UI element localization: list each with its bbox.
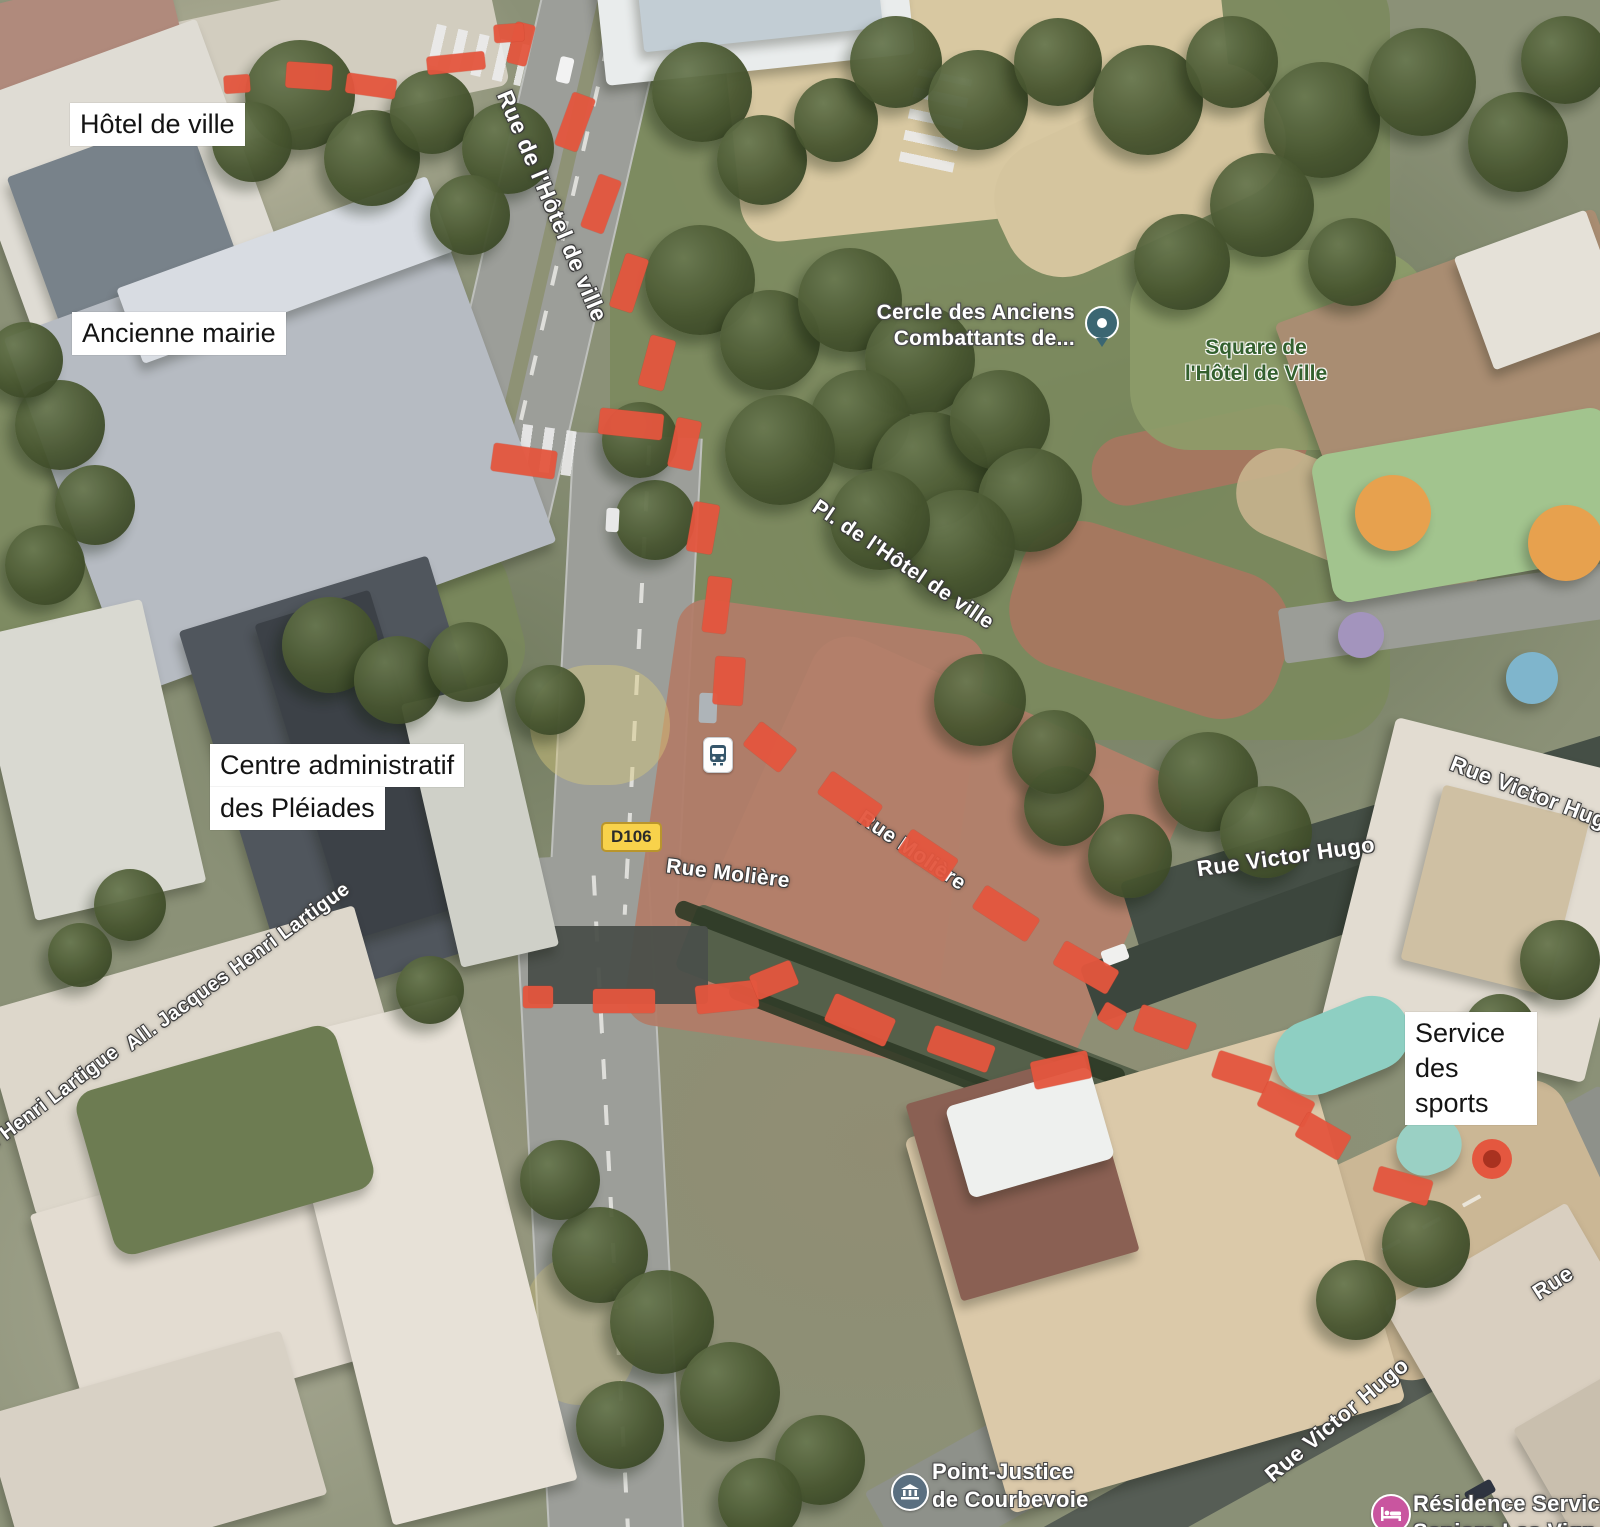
annotation-line: des sports — [1415, 1051, 1527, 1121]
route-end-marker — [1472, 1139, 1512, 1179]
annotation-line: Ancienne mairie — [72, 312, 286, 355]
tree-canopy — [1134, 214, 1230, 310]
tree-canopy — [717, 115, 807, 205]
vehicle — [605, 508, 619, 533]
annotation-line: Hôtel de ville — [70, 103, 245, 146]
map-play-circle-orange-2 — [1528, 505, 1600, 581]
route-dash — [285, 61, 333, 90]
tree-canopy — [1520, 920, 1600, 1000]
poi-label-line: l'Hôtel de Ville — [1185, 361, 1327, 387]
route-dash — [223, 74, 250, 94]
map-play-circle-blue — [1506, 652, 1558, 704]
tree-canopy — [1308, 218, 1396, 306]
tree-canopy — [576, 1381, 664, 1469]
poi-label-line: Cercle des Anciens — [877, 300, 1075, 326]
poi-label-square-de-l-hotel-de-ville[interactable]: Square del'Hôtel de Ville — [1185, 335, 1327, 388]
map-play-circle-orange-1 — [1355, 475, 1431, 551]
tree-canopy — [1186, 16, 1278, 108]
poi-label-line: de Courbevoie — [932, 1486, 1089, 1514]
map-pin-icon[interactable] — [1085, 306, 1119, 340]
tree-canopy — [1368, 28, 1476, 136]
annotation-ancienne-mairie: Ancienne mairie — [72, 312, 286, 355]
tree-canopy — [48, 923, 112, 987]
tree-canopy — [430, 175, 510, 255]
poi-label-line: Point-Justice — [932, 1458, 1089, 1486]
lodging-bed-icon[interactable] — [1371, 1494, 1411, 1527]
tree-canopy — [680, 1342, 780, 1442]
annotation-hotel-de-ville: Hôtel de ville — [70, 103, 245, 146]
annotation-centre-administratif-des-pleiades: Centre administratifdes Pléiades — [210, 744, 464, 830]
poi-label-line: Combattants de... — [877, 326, 1075, 352]
map-play-circle-purple — [1338, 612, 1384, 658]
tree-canopy — [1014, 18, 1102, 106]
route-dash — [712, 656, 745, 706]
route-dash — [1133, 1004, 1197, 1050]
tree-canopy — [1468, 92, 1568, 192]
justice-building-icon[interactable] — [891, 1473, 929, 1511]
bus-icon[interactable] — [703, 737, 733, 773]
poi-label-residence-services[interactable]: Résidence ServicesSeniors Les Vign — [1413, 1490, 1600, 1527]
annotation-service-des-sports: Servicedes sports — [1405, 1012, 1537, 1125]
route-dash — [593, 989, 655, 1013]
d106-badge[interactable]: D106 — [601, 822, 662, 852]
annotation-line: des Pléiades — [210, 787, 385, 830]
tree-canopy — [1521, 16, 1600, 104]
satellite-map[interactable]: Rue MolièreD106Rue de l'Hôtel de villePl… — [0, 0, 1600, 1527]
tree-canopy — [928, 50, 1028, 150]
tree-canopy — [396, 956, 464, 1024]
tree-canopy — [1382, 1200, 1470, 1288]
poi-label-cercle-des-anciens-combattants[interactable]: Cercle des AnciensCombattants de... — [877, 300, 1075, 353]
poi-label-point-justice-de-courbevoie[interactable]: Point-Justicede Courbevoie — [932, 1458, 1089, 1513]
route-end-marker-core — [1483, 1150, 1501, 1168]
tree-canopy — [615, 480, 695, 560]
route-dash — [523, 986, 553, 1008]
annotation-line: Centre administratif — [210, 744, 464, 787]
tree-canopy — [428, 622, 508, 702]
annotation-line: Service — [1415, 1016, 1527, 1051]
tree-canopy — [725, 395, 835, 505]
tree-canopy — [934, 654, 1026, 746]
tree-canopy — [520, 1140, 600, 1220]
poi-label-line: Seniors Les Vign — [1413, 1518, 1600, 1527]
tree-canopy — [1088, 814, 1172, 898]
poi-label-line: Square de — [1185, 335, 1327, 361]
tree-canopy — [515, 665, 585, 735]
tree-canopy — [94, 869, 166, 941]
route-dash — [493, 23, 524, 43]
tree-canopy — [1012, 710, 1096, 794]
tree-canopy — [1316, 1260, 1396, 1340]
poi-label-line: Résidence Services — [1413, 1490, 1600, 1518]
tree-canopy — [5, 525, 85, 605]
